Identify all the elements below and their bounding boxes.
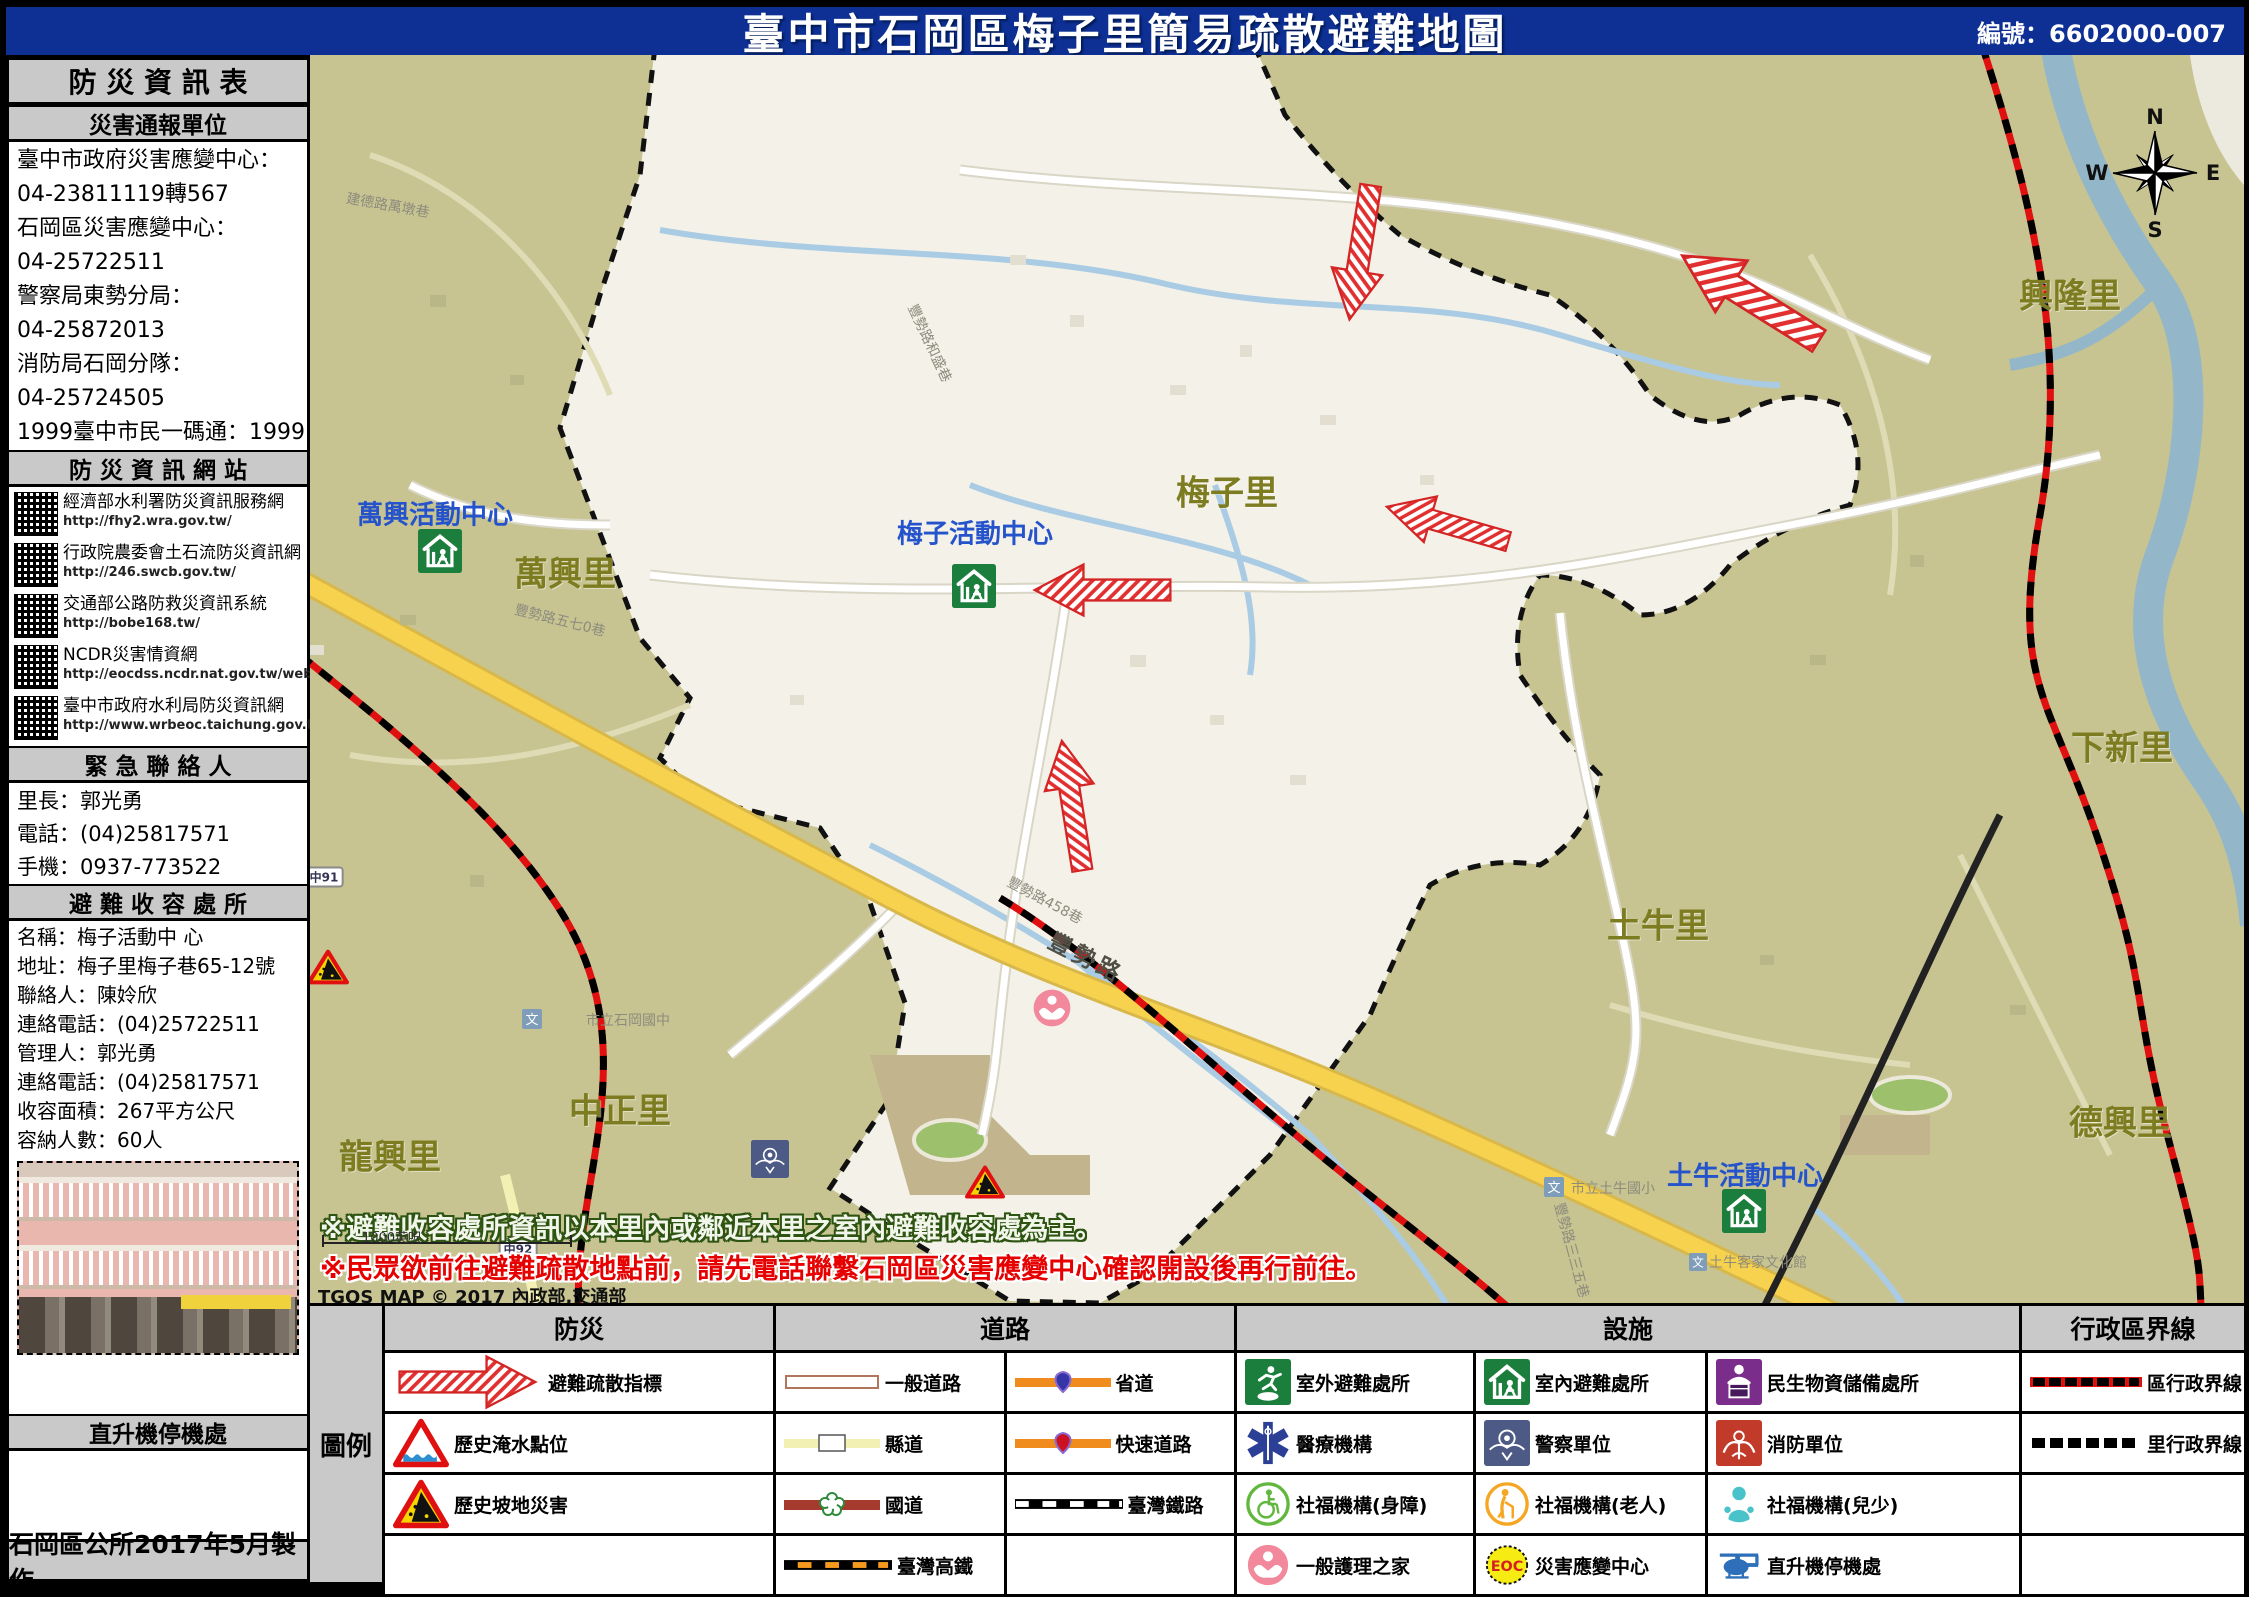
- shelter-line: 管理人：郭光勇: [17, 1039, 307, 1068]
- legend-entry-label: 一般道路: [885, 1369, 961, 1396]
- map-label: 中正里: [569, 1084, 671, 1133]
- shelter-photo: [17, 1161, 299, 1355]
- legend-entry: [385, 1536, 773, 1594]
- website-item: 行政院農委會土石流防災資訊網 http://246.swcb.gov.tw/: [13, 542, 307, 586]
- legend-entry: 警察單位: [1476, 1414, 1705, 1472]
- legend-column-header: 設施: [1237, 1306, 2019, 1350]
- report-line: 04-23811119轉567: [17, 178, 307, 212]
- report-line: 04-25722511: [17, 246, 307, 280]
- report-line: 警察局東勢分局：: [17, 280, 307, 314]
- legend-entry-label: 區行政界線: [2147, 1369, 2242, 1396]
- map-label: 市立土牛國小: [1571, 1178, 1655, 1198]
- report-units-list: 臺中市政府災害應變中心：04-23811119轉567石岡區災害應變中心：04-…: [9, 142, 307, 450]
- legend-entry-label: 省道: [1116, 1369, 1154, 1396]
- legend-entry-icon: [1484, 1481, 1530, 1527]
- publisher-footer: 石岡區公所2017年5月製作: [9, 1539, 307, 1579]
- map-point-icon: [1689, 1253, 1707, 1271]
- map-point-icon: [965, 1163, 1005, 1201]
- legend-entry-label: 快速道路: [1116, 1430, 1192, 1457]
- shelter-line: 連絡電話：(04)25722511: [17, 1010, 307, 1039]
- website-url: http://246.swcb.gov.tw/: [63, 564, 301, 582]
- map-point-icon: [1722, 1189, 1766, 1233]
- legend-entry: 歷史坡地災害: [385, 1475, 773, 1533]
- legend-entry-icon: [784, 1491, 880, 1517]
- photo-balcony-railing: [19, 1177, 297, 1221]
- legend-entry: 室內避難處所: [1476, 1353, 1705, 1411]
- report-line: 石岡區災害應變中心：: [17, 212, 307, 246]
- report-line: 04-25872013: [17, 314, 307, 348]
- report-line: 04-25724505: [17, 382, 307, 416]
- legend-entry-icon: [2030, 1433, 2142, 1453]
- report-line: 1999臺中市民一碼通：1999: [17, 416, 307, 450]
- legend-entry-icon: [1245, 1481, 1291, 1527]
- legend-entry: 社福機構(身障): [1237, 1475, 1473, 1533]
- map-point-icon: [952, 564, 996, 608]
- legend-entry-label: 消防單位: [1767, 1430, 1843, 1457]
- legend-entry-icon: [1484, 1359, 1530, 1405]
- legend-entry-label: 室內避難處所: [1535, 1369, 1649, 1396]
- website-item: 經濟部水利署防災資訊服務網 http://fhy2.wra.gov.tw/: [13, 491, 307, 535]
- legend-disaster-column: 避難疏散指標 歷史淹水點位 歷史坡地災害: [385, 1353, 773, 1594]
- map-point-icon: [522, 1009, 542, 1029]
- map-label: 德興里: [2069, 1096, 2171, 1145]
- legend-entry-icon: [784, 1557, 892, 1573]
- legend-headers: 防災道路設施行政區界線: [385, 1306, 2244, 1353]
- legend-title: 圖例: [310, 1306, 385, 1582]
- legend-entry: 社福機構(兒少): [1708, 1475, 2019, 1533]
- evacuation-arrow: [1032, 561, 1172, 619]
- website-url: http://www.wrbeoc.taichung.gov.tw/: [63, 717, 330, 735]
- report-line: 消防局石岡分隊：: [17, 348, 307, 382]
- photo-banner: [181, 1295, 291, 1309]
- legend-entry: 社福機構(老人): [1476, 1475, 1705, 1533]
- report-line: 臺中市政府災害應變中心：: [17, 144, 307, 178]
- legend-column-header: 防災: [385, 1306, 773, 1350]
- legend-entry: [2022, 1475, 2244, 1533]
- contact-line: 手機：0937-773522: [17, 851, 307, 884]
- website-url: http://eocdss.ncdr.nat.gov.tw/web/: [63, 666, 317, 684]
- legend-entry-icon: [393, 1560, 403, 1570]
- shelter-line: 收容面積：267平方公尺: [17, 1097, 307, 1126]
- legend-entry-icon: [1245, 1420, 1291, 1466]
- website-item: 臺中市政府水利局防災資訊網 http://www.wrbeoc.taichung…: [13, 695, 307, 739]
- legend-entry-icon: [1245, 1359, 1291, 1405]
- map-label: 梅子活動中心: [897, 514, 1053, 551]
- legend-entry-label: 歷史淹水點位: [454, 1430, 568, 1457]
- legend-entry-icon: [784, 1431, 880, 1455]
- shelter-line: 名稱：梅子活動中 心: [17, 923, 307, 952]
- compass-rose: [2110, 128, 2200, 218]
- legend-entry-label: 直升機停機處: [1767, 1552, 1881, 1579]
- map-point-icon: [1544, 1177, 1564, 1197]
- legend-entry-label: 避難疏散指標: [548, 1369, 662, 1396]
- legend-entry-icon: [393, 1417, 449, 1469]
- legend-entry: 國道: [776, 1475, 1004, 1533]
- legend-entry-icon: [2030, 1499, 2040, 1509]
- legend-entry-label: 臺灣高鐵: [897, 1552, 973, 1579]
- map-label: 萬興里: [514, 547, 616, 596]
- map-point-icon: [310, 947, 349, 987]
- legend-entry-label: 社福機構(老人): [1535, 1491, 1666, 1518]
- website-url: http://fhy2.wra.gov.tw/: [63, 513, 284, 531]
- website-url: http://bobe168.tw/: [63, 615, 267, 633]
- map-label: 土牛客家文化館: [1709, 1252, 1807, 1272]
- map-label: 萬興活動中心: [357, 495, 513, 532]
- legend-entry: 室外避難處所: [1237, 1353, 1473, 1411]
- legend-entry-label: 臺灣鐵路: [1128, 1491, 1204, 1518]
- shelter-header: 避 難 收 容 處 所: [9, 884, 307, 921]
- legend-entry-icon: [784, 1371, 880, 1393]
- legend-entry-label: 一般護理之家: [1296, 1552, 1410, 1579]
- legend-entry-label: 社福機構(身障): [1296, 1491, 1427, 1518]
- heliport-header: 直升機停機處: [9, 1414, 307, 1451]
- legend-facilities-column: 室外避難處所 室內避難處所 民生物資儲備處所: [1237, 1353, 2019, 1594]
- legend-column-header: 行政區界線: [2022, 1306, 2244, 1350]
- legend-entry: 災害應變中心: [1476, 1536, 1705, 1594]
- map-label: 興隆里: [2019, 269, 2121, 318]
- legend-entry: 省道: [1007, 1353, 1235, 1411]
- legend-entry-icon: [1245, 1542, 1291, 1588]
- note-call-before-evacuating: ※民眾欲前往避難疏散地點前，請先電話聯繫石岡區災害應變中心確認開設後再行前往。: [320, 1247, 1372, 1286]
- shelter-line: 容納人數：60人: [17, 1126, 307, 1155]
- report-units-header: 災害通報單位: [9, 105, 307, 142]
- legend-entry-icon: [1015, 1496, 1123, 1512]
- legend-entry-icon: [1716, 1542, 1762, 1588]
- website-item: NCDR災害情資網 http://eocdss.ncdr.nat.gov.tw/…: [13, 644, 307, 688]
- legend-entry: 區行政界線: [2022, 1353, 2244, 1411]
- legend-entry-icon: [1484, 1542, 1530, 1588]
- legend-entry: 直升機停機處: [1708, 1536, 2019, 1594]
- shelter-line: 地址：梅子里梅子巷65-12號: [17, 952, 307, 981]
- compass-letter: N: [2146, 105, 2164, 129]
- legend-entry-label: 災害應變中心: [1535, 1552, 1649, 1579]
- legend-entry: [1007, 1536, 1235, 1594]
- legend-entry-icon: [2030, 1560, 2040, 1570]
- map-point-icon: [751, 1140, 789, 1178]
- qr-code-icon: [15, 544, 57, 586]
- legend-entry-label: 民生物資儲備處所: [1767, 1369, 1919, 1396]
- compass-letter: S: [2147, 218, 2162, 242]
- websites-header: 防 災 資 訊 網 站: [9, 450, 307, 487]
- photo-balcony-railing: [19, 1245, 297, 1289]
- legend-entry: 避難疏散指標: [385, 1353, 773, 1411]
- website-item: 交通部公路防救災資訊系統 http://bobe168.tw/: [13, 593, 307, 637]
- legend-entry: 臺灣鐵路: [1007, 1475, 1235, 1533]
- legend-entry: 里行政界線: [2022, 1414, 2244, 1472]
- legend-entry: 縣道: [776, 1414, 1004, 1472]
- compass-letter: E: [2206, 161, 2220, 185]
- info-panel: 防 災 資 訊 表 災害通報單位 臺中市政府災害應變中心：04-23811119…: [6, 55, 310, 1582]
- legend-entry-icon: [1015, 1369, 1111, 1395]
- legend-entry: 一般道路: [776, 1353, 1004, 1411]
- legend-entry-label: 縣道: [885, 1430, 923, 1457]
- legend-entry-label: 醫療機構: [1296, 1430, 1372, 1457]
- legend-entry-icon: [2030, 1372, 2142, 1392]
- map-label: 下新里: [2071, 721, 2173, 770]
- qr-code-icon: [15, 493, 57, 535]
- legend-entry-label: 歷史坡地災害: [454, 1491, 568, 1518]
- map-label: 龍興里: [339, 1130, 441, 1179]
- legend-entry-icon: [1716, 1359, 1762, 1405]
- legend-roads-column: 一般道路 省道 縣道: [776, 1353, 1234, 1594]
- shelter-line: 連絡電話：(04)25817571: [17, 1068, 307, 1097]
- legend-entry: [2022, 1536, 2244, 1594]
- map-label: 梅子里: [1176, 466, 1278, 515]
- legend-column-header: 道路: [776, 1306, 1234, 1350]
- map-label: 土牛里: [1607, 899, 1709, 948]
- info-panel-title: 防 災 資 訊 表: [9, 58, 307, 105]
- legend-entry: 民生物資儲備處所: [1708, 1353, 2019, 1411]
- legend-entry: 臺灣高鐵: [776, 1536, 1004, 1594]
- contact-line: 里長：郭光勇: [17, 785, 307, 818]
- legend-entry: 歷史淹水點位: [385, 1414, 773, 1472]
- title-bar: 臺中市石岡區梅子里簡易疏散避難地圖 編號：6602000-007: [6, 7, 2244, 55]
- map-point-icon: [1031, 987, 1073, 1029]
- qr-code-icon: [15, 595, 57, 637]
- map-point-icon: [418, 529, 462, 573]
- websites-list: 經濟部水利署防災資訊服務網 http://fhy2.wra.gov.tw/ 行政…: [9, 487, 307, 746]
- legend-admin-column: 區行政界線 里行政界線: [2022, 1353, 2244, 1594]
- page-title: 臺中市石岡區梅子里簡易疏散避難地圖: [742, 1, 1507, 62]
- legend-entry-icon: [1716, 1420, 1762, 1466]
- legend-entry-icon: [393, 1478, 449, 1530]
- legend-entry-icon: [1716, 1481, 1762, 1527]
- website-name: 臺中市政府水利局防災資訊網: [63, 695, 330, 717]
- qr-code-icon: [15, 697, 57, 739]
- shelter-info-list: 名稱：梅子活動中 心地址：梅子里梅子巷65-12號聯絡人：陳姈欣連絡電話：(04…: [9, 921, 307, 1155]
- scale-label: 1000英呎: [362, 1227, 421, 1246]
- legend-entry-label: 里行政界線: [2147, 1430, 2242, 1457]
- legend-entry-label: 警察單位: [1535, 1430, 1611, 1457]
- legend: 圖例 防災道路設施行政區界線 避難疏散指標: [310, 1303, 2244, 1582]
- map-label: 土牛活動中心: [1667, 1156, 1823, 1193]
- website-name: NCDR災害情資網: [63, 644, 317, 666]
- website-name: 行政院農委會土石流防災資訊網: [63, 542, 301, 564]
- legend-entry-icon: [1015, 1430, 1111, 1456]
- website-name: 經濟部水利署防災資訊服務網: [63, 491, 284, 513]
- legend-entry-label: 室外避難處所: [1296, 1369, 1410, 1396]
- legend-entry-icon: [1484, 1420, 1530, 1466]
- legend-entry-label: 社福機構(兒少): [1767, 1491, 1898, 1518]
- qr-code-icon: [15, 646, 57, 688]
- emergency-contact-header: 緊 急 聯 絡 人: [9, 746, 307, 783]
- contact-line: 電話：(04)25817571: [17, 818, 307, 851]
- map-serial-number: 編號：6602000-007: [1977, 14, 2226, 49]
- legend-entry: 消防單位: [1708, 1414, 2019, 1472]
- legend-entry: 醫療機構: [1237, 1414, 1473, 1472]
- legend-entry-label: 國道: [885, 1491, 923, 1518]
- legend-entry-icon: [393, 1353, 543, 1411]
- shelter-line: 聯絡人：陳姈欣: [17, 981, 307, 1010]
- compass-letter: W: [2085, 161, 2108, 185]
- legend-entry-icon: [1015, 1560, 1025, 1570]
- emergency-contact-list: 里長：郭光勇電話：(04)25817571手機：0937-773522: [9, 783, 307, 884]
- legend-entry: 快速道路: [1007, 1414, 1235, 1472]
- map-label: 市立石岡國中: [586, 1010, 670, 1030]
- legend-entry: 一般護理之家: [1237, 1536, 1473, 1594]
- website-name: 交通部公路防救災資訊系統: [63, 593, 267, 615]
- road-shield: 中91: [310, 867, 343, 888]
